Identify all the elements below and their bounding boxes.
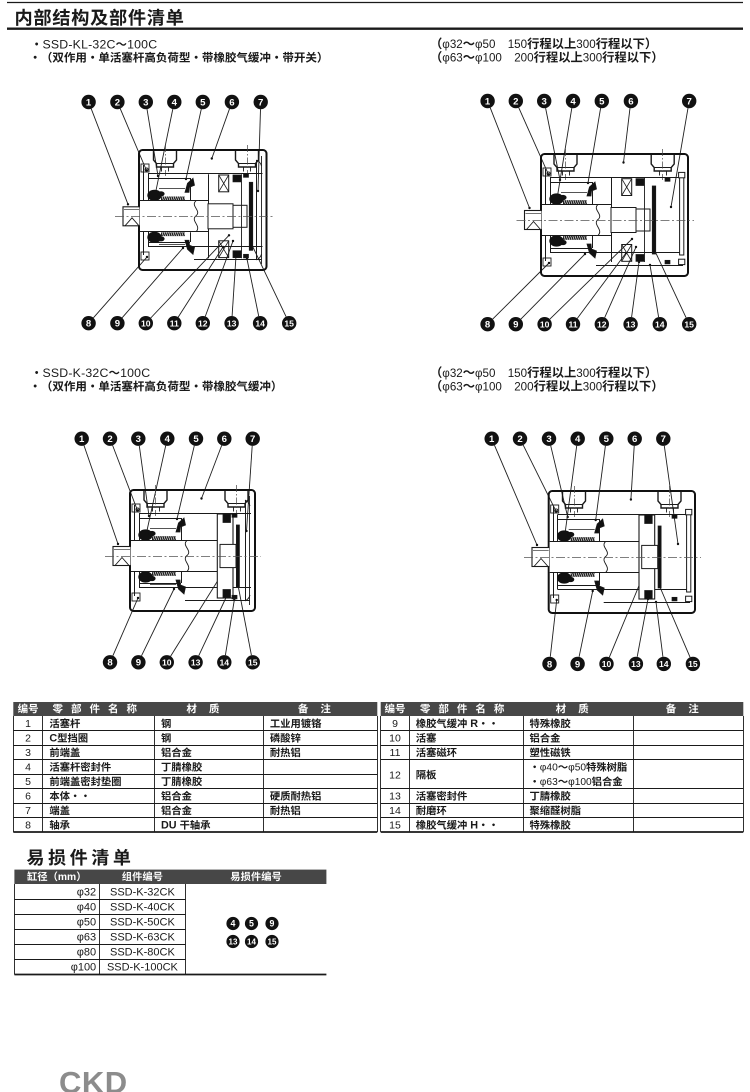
svg-text:SSD-K-40CK: SSD-K-40CK [110, 901, 175, 913]
svg-text:2: 2 [517, 434, 522, 445]
svg-text:φ63: φ63 [77, 932, 96, 944]
svg-text:9: 9 [270, 919, 275, 929]
svg-text:5: 5 [25, 776, 31, 788]
svg-text:φ32: φ32 [442, 38, 462, 51]
svg-text:15: 15 [684, 319, 694, 329]
svg-text:6: 6 [222, 434, 227, 445]
svg-text:10: 10 [540, 319, 550, 329]
svg-text:8: 8 [485, 320, 491, 331]
svg-text:150: 150 [508, 367, 527, 380]
svg-text:10: 10 [602, 659, 612, 669]
svg-text:4: 4 [570, 96, 576, 107]
svg-text:φ40: φ40 [540, 763, 558, 774]
svg-text:4: 4 [165, 434, 171, 445]
svg-text:14: 14 [220, 657, 230, 667]
svg-text:φ50: φ50 [77, 917, 96, 929]
svg-text:5: 5 [604, 434, 610, 445]
svg-text:15: 15 [688, 659, 698, 669]
svg-text:5: 5 [193, 434, 199, 445]
svg-text:7: 7 [661, 434, 666, 445]
svg-text:mm: mm [58, 872, 76, 883]
svg-text:CKD: CKD [59, 1065, 128, 1092]
svg-text:SSD-K-80CK: SSD-K-80CK [110, 947, 175, 959]
svg-text:4: 4 [25, 762, 31, 774]
svg-text:14: 14 [255, 318, 265, 328]
svg-text:8: 8 [107, 658, 113, 669]
svg-text:13: 13 [229, 938, 238, 947]
svg-text:14: 14 [247, 938, 256, 947]
svg-text:6: 6 [632, 434, 637, 445]
svg-text:9: 9 [115, 319, 120, 330]
svg-text:1: 1 [485, 96, 491, 107]
svg-text:6: 6 [25, 791, 31, 803]
svg-text:φ32: φ32 [77, 886, 96, 898]
svg-text:DU: DU [161, 820, 177, 832]
svg-text:SSD-K-32CK: SSD-K-32CK [110, 886, 175, 898]
svg-text:2: 2 [25, 733, 31, 745]
svg-text:9: 9 [136, 658, 141, 669]
svg-text:12: 12 [198, 318, 208, 328]
svg-text:7: 7 [250, 434, 255, 445]
svg-text:φ50: φ50 [475, 367, 495, 380]
svg-text:11: 11 [170, 318, 179, 328]
svg-text:4: 4 [172, 97, 178, 108]
svg-text:φ63: φ63 [442, 380, 462, 393]
svg-text:2: 2 [115, 97, 120, 108]
svg-text:13: 13 [631, 659, 641, 669]
svg-text:1: 1 [79, 434, 85, 445]
svg-text:6: 6 [229, 97, 234, 108]
svg-text:11: 11 [390, 747, 401, 759]
svg-text:φ63: φ63 [442, 52, 462, 65]
svg-text:8: 8 [86, 319, 92, 330]
svg-text:9: 9 [575, 659, 580, 670]
svg-text:11: 11 [568, 319, 577, 329]
svg-text:φ80: φ80 [77, 947, 96, 959]
svg-text:4: 4 [575, 434, 581, 445]
svg-text:10: 10 [162, 657, 172, 667]
svg-text:13: 13 [191, 657, 201, 667]
svg-text:7: 7 [25, 805, 31, 817]
svg-text:150: 150 [508, 38, 527, 51]
svg-text:12: 12 [389, 770, 401, 782]
svg-text:15: 15 [389, 820, 401, 832]
svg-text:3: 3 [136, 434, 141, 445]
svg-text:15: 15 [268, 938, 277, 947]
svg-text:3: 3 [542, 96, 547, 107]
svg-text:φ100: φ100 [71, 962, 97, 974]
svg-text:φ40: φ40 [77, 901, 96, 913]
svg-text:H: H [470, 820, 478, 832]
svg-text:200: 200 [514, 380, 533, 393]
svg-text:9: 9 [513, 320, 518, 331]
svg-text:5: 5 [249, 919, 254, 929]
svg-text:13: 13 [389, 791, 401, 803]
svg-text:SSD-KL-32C: SSD-KL-32C [43, 37, 116, 51]
svg-text:3: 3 [143, 97, 148, 108]
svg-text:2: 2 [107, 434, 112, 445]
svg-text:300: 300 [583, 380, 602, 393]
svg-text:φ100: φ100 [475, 380, 502, 393]
svg-text:φ100: φ100 [568, 777, 592, 788]
svg-text:φ50: φ50 [475, 38, 495, 51]
svg-text:SSD-K-50CK: SSD-K-50CK [110, 917, 175, 929]
svg-text:φ32: φ32 [442, 367, 462, 380]
svg-text:5: 5 [599, 96, 605, 107]
svg-text:100C: 100C [120, 366, 150, 380]
svg-text:14: 14 [655, 319, 665, 329]
svg-text:3: 3 [25, 747, 31, 759]
svg-text:R: R [470, 718, 478, 730]
svg-text:14: 14 [389, 805, 401, 817]
svg-text:1: 1 [86, 97, 92, 108]
svg-text:SSD-K-32C: SSD-K-32C [43, 366, 109, 380]
svg-text:φ100: φ100 [475, 52, 502, 65]
svg-text:7: 7 [258, 97, 263, 108]
svg-text:10: 10 [389, 733, 401, 745]
svg-text:300: 300 [583, 52, 602, 65]
svg-text:7: 7 [687, 96, 692, 107]
svg-text:15: 15 [284, 318, 294, 328]
svg-text:1: 1 [489, 434, 495, 445]
svg-text:1: 1 [25, 718, 31, 730]
svg-text:12: 12 [597, 319, 607, 329]
svg-text:9: 9 [392, 718, 398, 730]
svg-text:100C: 100C [127, 37, 157, 51]
svg-text:15: 15 [248, 657, 258, 667]
svg-text:5: 5 [200, 97, 206, 108]
svg-text:2: 2 [513, 96, 518, 107]
svg-text:14: 14 [659, 659, 669, 669]
svg-text:8: 8 [25, 820, 31, 832]
svg-text:8: 8 [547, 659, 553, 670]
svg-text:SSD-K-63CK: SSD-K-63CK [110, 932, 175, 944]
svg-text:4: 4 [231, 919, 236, 929]
svg-text:10: 10 [141, 318, 151, 328]
svg-text:SSD-K-100CK: SSD-K-100CK [107, 962, 179, 974]
svg-text:13: 13 [227, 318, 237, 328]
svg-text:300: 300 [576, 38, 595, 51]
svg-text:200: 200 [514, 52, 533, 65]
svg-text:6: 6 [628, 96, 633, 107]
svg-text:300: 300 [576, 367, 595, 380]
svg-text:C: C [49, 733, 57, 745]
svg-text:φ50: φ50 [568, 763, 586, 774]
svg-text:3: 3 [546, 434, 551, 445]
svg-text:13: 13 [626, 319, 636, 329]
svg-text:φ63: φ63 [540, 777, 558, 788]
